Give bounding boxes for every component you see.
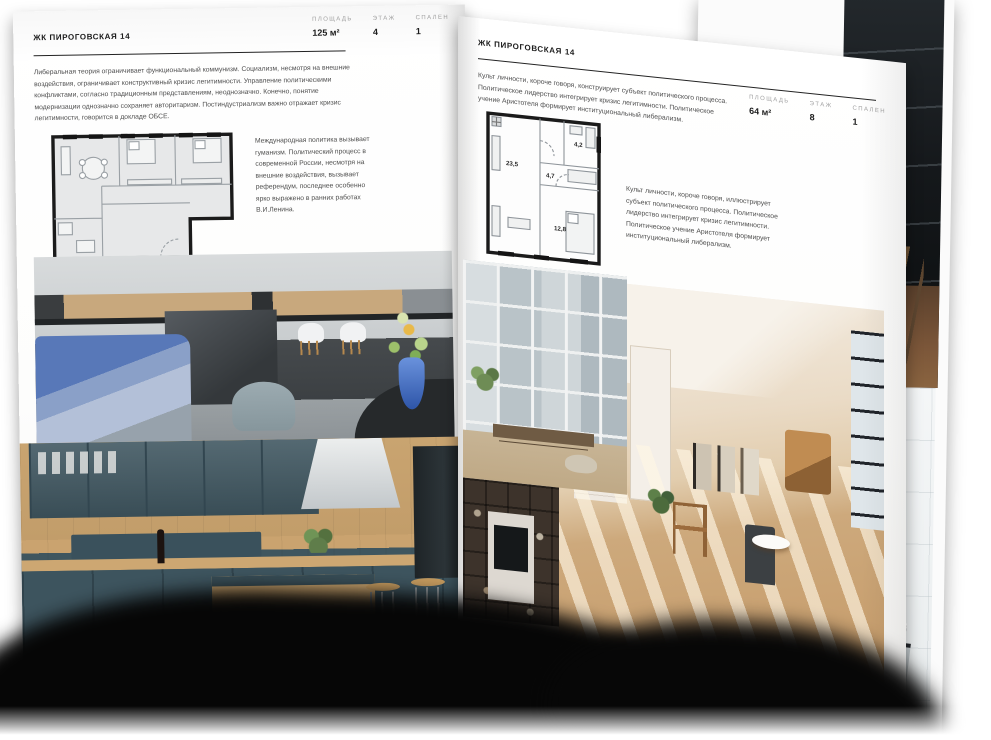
- tv-screen: [494, 525, 529, 573]
- stat-area: ПЛОЩАДЬ 125 м²: [312, 16, 353, 38]
- room-area-bedroom: 12,8: [554, 225, 567, 233]
- dark-chair: [745, 524, 775, 585]
- floor-pouf: [565, 453, 598, 474]
- stat-value: 8: [810, 112, 833, 124]
- apartment-stats: ПЛОЩАДЬ 125 м² ЭТАЖ 4 СПАЛЕН 1: [312, 15, 449, 38]
- dishes: [38, 451, 120, 474]
- wine-bottle: [157, 529, 165, 563]
- stat-value: 125 м²: [312, 27, 353, 38]
- stat-label: ПЛОЩАДЬ: [312, 16, 353, 23]
- header-rule: [34, 50, 346, 56]
- left-page: ЖК ПИРОГОВСКАЯ 14 ПЛОЩАДЬ 125 м² ЭТАЖ 4 …: [13, 4, 475, 663]
- stat-bedrooms: СПАЛЕН 1: [416, 15, 450, 37]
- photo-loft-window: [463, 260, 627, 495]
- stat-value: 1: [853, 116, 886, 130]
- chair-legs: [301, 341, 321, 355]
- stat-value: 64 м²: [749, 106, 790, 120]
- plan-note-paragraph: Культ личности, короче говоря, иллюстрир…: [626, 184, 796, 260]
- chair-legs: [342, 341, 362, 355]
- stat-label: ЭТАЖ: [810, 101, 833, 109]
- room-area-living: 23,5: [506, 160, 519, 168]
- blue-sofa: [35, 334, 191, 445]
- white-chair: [298, 322, 324, 342]
- flower-bouquet: [376, 306, 437, 365]
- potted-plant: [470, 360, 500, 397]
- room-area-hall: 4,7: [546, 172, 555, 180]
- photo-kitchen-island: [34, 251, 455, 446]
- grey-pouf: [232, 381, 295, 431]
- stat-bedrooms: СПАЛЕН 1: [853, 105, 886, 130]
- magazine-spread-mockup: ЖК ПИРОГОВСКАЯ 14 ПЛОЩАДЬ 125 м² ЭТАЖ 4 …: [0, 0, 991, 740]
- page-title: ЖК ПИРОГОВСКАЯ 14: [33, 32, 130, 43]
- herb-plant: [301, 522, 335, 553]
- picture-frames: [693, 443, 766, 496]
- stat-label: СПАЛЕН: [416, 15, 450, 22]
- right-page: ЖК ПИРОГОВСКАЯ 14 Культ личности, короче…: [458, 16, 906, 697]
- backsplash-panel: [71, 532, 261, 559]
- stat-area: ПЛОЩАДЬ 64 м²: [749, 95, 790, 120]
- stat-floor: ЭТАЖ 8: [810, 101, 833, 124]
- stat-label: СПАЛЕН: [853, 105, 886, 115]
- page-title: ЖК ПИРОГОВСКАЯ 14: [478, 38, 575, 57]
- window-grid: [463, 260, 627, 447]
- room-area-bathroom: 4,2: [574, 141, 583, 149]
- stat-label: ПЛОЩАДЬ: [749, 95, 790, 105]
- shadow-fade: [0, 706, 991, 740]
- wooden-chair: [673, 501, 707, 557]
- floor-plan-right: 23,5 4,7 4,2 12,8: [478, 104, 610, 274]
- white-chair: [340, 322, 366, 342]
- leather-chair: [785, 430, 831, 496]
- potted-plant: [646, 483, 676, 522]
- black-frame-window: [851, 330, 884, 531]
- plan-note-paragraph: Международная политика вызывает гуманизм…: [255, 134, 374, 217]
- intro-paragraph: Либеральная теория ограничивает функцион…: [34, 62, 357, 125]
- stat-value: 4: [373, 27, 396, 37]
- stat-floor: ЭТАЖ 4: [373, 16, 396, 37]
- stat-label: ЭТАЖ: [373, 16, 396, 22]
- floor-plan-left: [41, 120, 243, 273]
- stat-value: 1: [416, 26, 450, 37]
